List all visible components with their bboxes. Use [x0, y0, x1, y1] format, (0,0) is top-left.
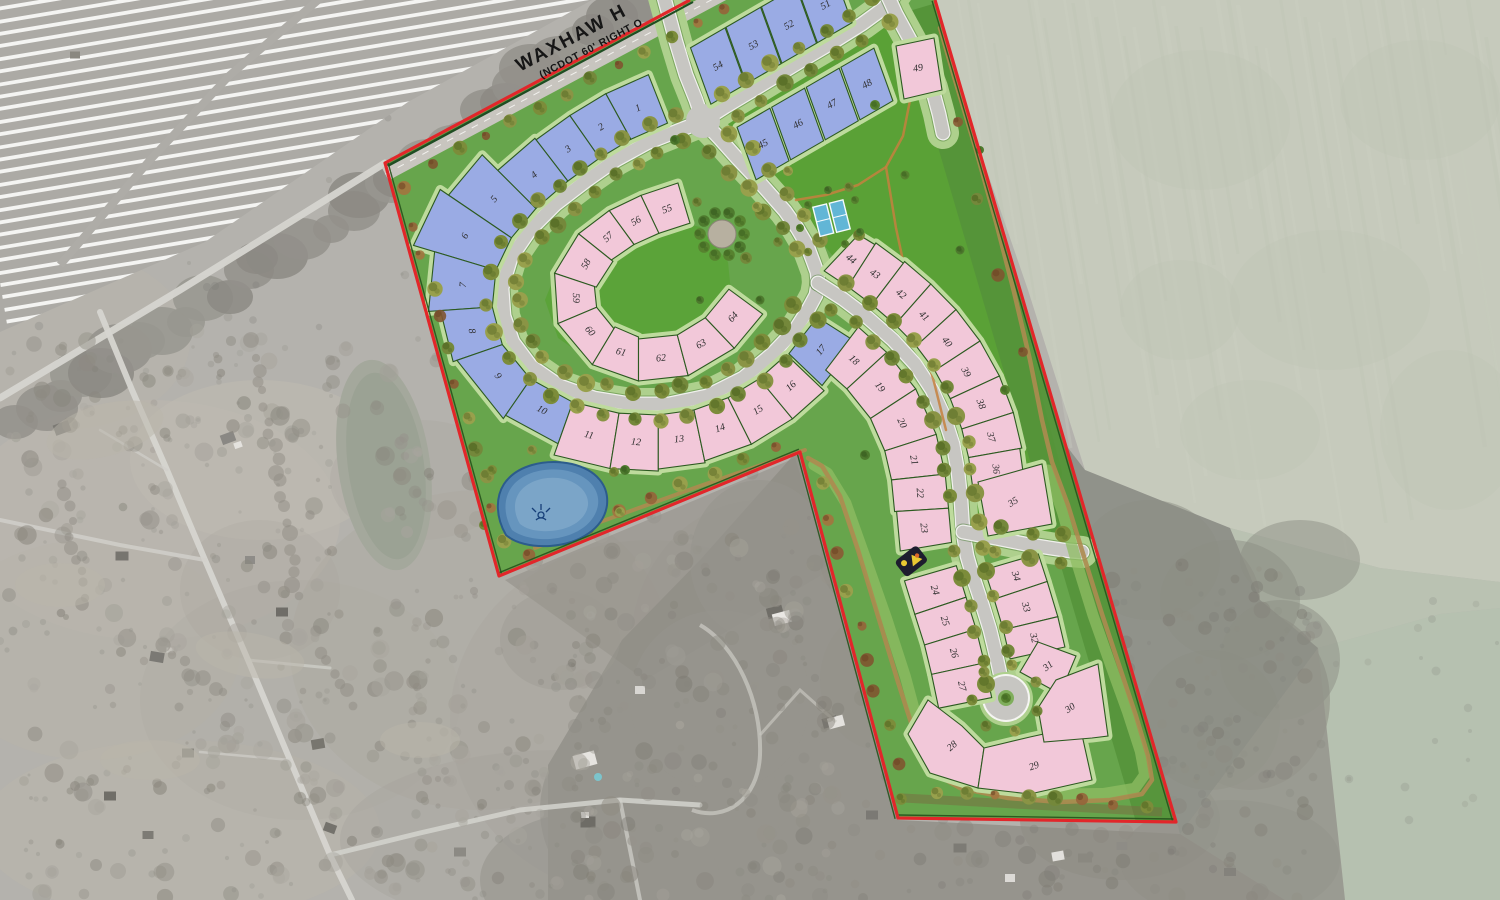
svg-text:23: 23 [917, 522, 929, 533]
svg-text:49: 49 [912, 62, 924, 75]
svg-text:12: 12 [630, 437, 641, 449]
svg-text:59: 59 [570, 293, 581, 303]
svg-text:36: 36 [989, 462, 1001, 474]
svg-text:13: 13 [674, 434, 685, 446]
svg-text:22: 22 [914, 488, 926, 499]
svg-text:62: 62 [655, 352, 666, 364]
